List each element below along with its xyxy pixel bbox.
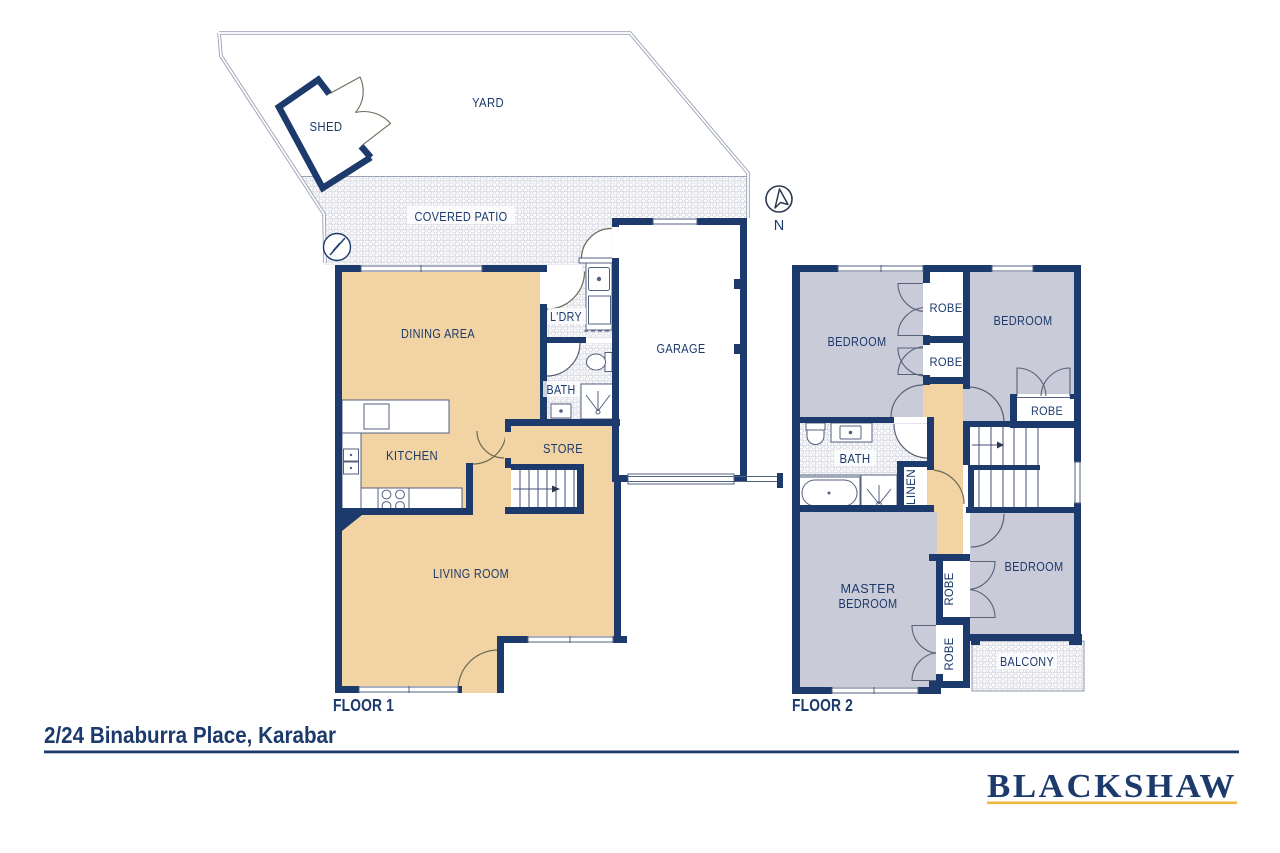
svg-text:BEDROOM: BEDROOM bbox=[994, 313, 1053, 328]
svg-text:SHED: SHED bbox=[310, 119, 343, 134]
svg-text:ROBE: ROBE bbox=[944, 572, 956, 605]
svg-text:L'DRY: L'DRY bbox=[550, 309, 582, 324]
svg-text:BEDROOM: BEDROOM bbox=[828, 334, 887, 349]
svg-text:N: N bbox=[774, 218, 784, 234]
svg-text:LIVING ROOM: LIVING ROOM bbox=[433, 566, 509, 581]
svg-text:2/24 Binaburra Place, Karabar: 2/24 Binaburra Place, Karabar bbox=[44, 722, 336, 748]
svg-text:ROBE: ROBE bbox=[1031, 406, 1063, 418]
svg-text:FLOOR 2: FLOOR 2 bbox=[792, 695, 853, 715]
svg-text:BEDROOM: BEDROOM bbox=[1005, 559, 1064, 574]
svg-text:KITCHEN: KITCHEN bbox=[386, 448, 438, 463]
svg-text:FLOOR 1: FLOOR 1 bbox=[333, 695, 394, 715]
svg-text:STORE: STORE bbox=[543, 441, 583, 456]
svg-text:ROBE: ROBE bbox=[930, 357, 963, 369]
svg-text:BLACKSHAW: BLACKSHAW bbox=[987, 768, 1237, 805]
svg-text:LINEN: LINEN bbox=[906, 469, 918, 505]
svg-text:BALCONY: BALCONY bbox=[1000, 654, 1054, 669]
svg-text:BATH: BATH bbox=[547, 382, 576, 397]
svg-text:ROBE: ROBE bbox=[944, 637, 956, 670]
svg-text:COVERED PATIO: COVERED PATIO bbox=[415, 209, 508, 224]
svg-text:GARAGE: GARAGE bbox=[657, 341, 706, 356]
svg-text:YARD: YARD bbox=[472, 95, 504, 110]
svg-text:BEDROOM: BEDROOM bbox=[839, 596, 898, 611]
svg-text:MASTER: MASTER bbox=[841, 581, 896, 596]
svg-text:DINING AREA: DINING AREA bbox=[401, 326, 475, 341]
svg-text:ROBE: ROBE bbox=[930, 303, 963, 315]
svg-text:BATH: BATH bbox=[840, 451, 871, 466]
